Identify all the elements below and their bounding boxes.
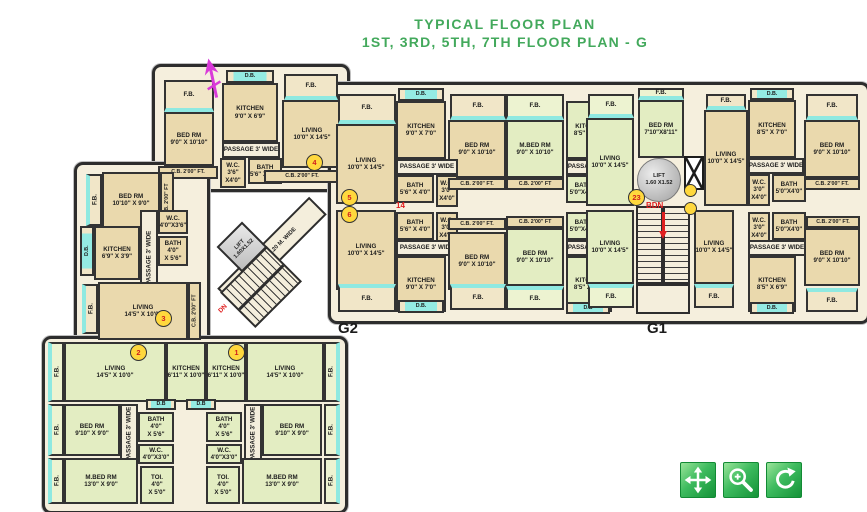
room-label: F.B. [327,367,334,378]
room-label: W.C. [752,179,765,186]
room-d-b: D.B. [750,302,794,314]
room-label: D.B [156,401,165,407]
room-label: X 5'6" [147,431,164,438]
room-d-b: D.B. [398,300,444,313]
title-line-1: TYPICAL FLOOR PLAN [335,16,675,32]
room-f-b: F.B. [48,404,64,456]
room-label: D.B [196,401,205,407]
red-annotation: 14 [396,201,405,210]
room-f-b: F.B. [450,284,506,310]
move-icon [683,465,713,495]
room-living: LIVING10'0" X 14'5" [704,110,748,206]
down-arrow-icon [662,212,665,236]
room-label: KITCHEN [758,277,786,284]
room-bed-rm: BED RM9'10" X 9'0" [64,404,120,456]
room-label: 6'11" X 10'0" [168,372,205,379]
unit-number-badge: 6 [341,206,358,223]
room-label: X4'0" [751,194,766,201]
room-bath: BATH5'6" X 4'0" [396,175,434,203]
room-f-b: F.B. [86,174,102,226]
room-label: PASSAGE 3' WIDE [224,146,278,153]
room-label: D.B. [84,246,90,257]
room-bed-rm: BED RM9'0" X 10'10" [164,112,214,166]
room-label: F.B. [709,293,720,300]
room-label: C.B. 2'00" FT [519,219,552,225]
room-label: BED RM [465,254,489,261]
room-label: 3'0" [753,224,764,231]
room-label: 6'9" X 3'9" [102,253,132,260]
room-c-b-2-00-ft: C.B. 2'00" FT [506,178,564,190]
room-f-b: F.B. [638,88,684,100]
room-label: M.BED RM [266,474,297,481]
room-label: 10'0" X 14'5" [591,247,628,254]
room-label: LIVING [133,304,154,311]
room-label: BED RM [177,132,201,139]
room-label: PASSAGE 3' WIDE [400,244,454,251]
room-label: M.BED RM [519,142,550,149]
room-label: 10'0" X 14'5" [707,158,744,165]
room-label: LIVING [716,151,737,158]
room-label: 5'0"X4'0" [776,188,803,195]
unit-number-badge: 23 [628,189,645,206]
room-label: 3'0" [753,186,764,193]
room-d-b: D.B. [398,88,444,101]
room-living: LIVING14'5" X 10'0" [246,342,324,402]
room-label: 5'6" X 4'0" [400,189,430,196]
room-w-c: W.C.3'6"X4'0" [220,158,246,188]
room-bath: BATH4'0"X 5'6" [138,412,174,442]
room-label: LIVING [275,365,296,372]
room-label: X 5'6" [164,255,181,262]
room-passage-3-wide: PASSAGE 3' WIDE [244,404,262,464]
room-f-b: F.B. [694,284,734,308]
room-bed-rm: BED RM9'0" X 10'10" [448,232,506,290]
room-label: 4'0"X3'0" [211,454,238,461]
room-w-c: W.C.4'0"X3'0" [138,444,174,464]
room-f-b: F.B. [48,458,64,504]
room-label: LIVING [302,127,323,134]
room-c-b-2-00-ft: C.B. 2'00" FT. [804,178,860,190]
room-label: 4'0" [217,481,228,488]
room-f-b: F.B. [506,94,564,120]
room-label: 9'0" X 10'10" [170,139,207,146]
room-label: F.B. [184,91,195,98]
room-label: F.B. [606,101,617,108]
room-passage-3-wide: PASSAGE 3' WIDE [120,404,138,464]
zoom-in-button[interactable] [723,462,759,498]
room-label: C.B. 2'00" FT [191,295,197,328]
viewer-toolbar [680,462,802,498]
room-label: KITCHEN [103,246,131,253]
unit-number: 4 [312,158,316,167]
room-w-c: W.C.3'0"X4'0" [748,174,770,206]
room-f-b: F.B. [48,342,64,402]
unit-number-badge: 5 [341,189,358,206]
room-label: 10'0" X 14'5" [591,162,628,169]
room-label: 9'0" X 7'0" [406,130,436,137]
room-bed-rm: BED RM7'10"X8'11" [638,100,684,158]
room-label: F.B. [91,195,98,206]
room-label: BATH [781,181,798,188]
room-label: F.B. [827,102,838,109]
room-f-b: F.B. [706,94,746,110]
room-c-b-2-00-ft: C.B. 2'00" FT. [448,218,506,230]
room-f-b: F.B. [450,94,506,120]
room-label: 10'10" X 9'0" [112,200,149,207]
room-label: F.B. [473,294,484,301]
room-bed-rm: BED RM9'0" X 10'10" [804,228,860,286]
room-label: F.B. [53,367,60,378]
room-passage-3-wide: PASSAGE 3' WIDE [222,142,280,158]
room-f-b: F.B. [588,284,634,308]
room-label: 10'0" X 14'5" [695,247,732,254]
room-label: 6'11" X 10'0" [208,372,245,379]
room-kitchen: KITCHEN6'9" X 3'9" [94,226,140,280]
room-label: BED RM [280,423,304,430]
stair-flight [665,208,688,282]
room-label: PASSAGE 3' WIDE [400,163,454,170]
room-label: KITCHEN [172,365,200,372]
room-w-c: W.C.4'0"X3'0" [206,444,242,464]
room-label: D.B. [767,91,778,97]
room-passage-3-wide: PASSAGE 3' WIDE [748,158,804,174]
room-label: BED RM [80,423,104,430]
room-label: C.B. 2'00" FT. [460,181,494,187]
room-living: LIVING14'5" X 10'0" [64,342,166,402]
room-f-b: F.B. [338,94,396,124]
room-c-b-2-00-ft: C.B. 2'00" FT. [264,170,340,183]
room-label: LIVING [600,240,621,247]
room-label: F.B. [53,425,60,436]
room-label: 8'5" X 6'9" [757,284,787,291]
stair-dn-label: DN [217,303,229,315]
room-label: F.B. [606,293,617,300]
room-label: BATH [216,416,233,423]
room-label: W.C. [149,447,162,454]
room-f-b: F.B. [338,284,396,312]
room-label: BATH [407,182,424,189]
room-f-b: F.B. [324,458,340,504]
room-d-b: D.B. [80,226,94,276]
unit-number: 5 [347,193,351,202]
room-label: KITCHEN [212,365,240,372]
rotate-button[interactable] [766,462,802,498]
room-label: BED RM [820,142,844,149]
room-kitchen: KITCHEN8'5" X 7'0" [748,100,796,158]
room-label: F.B. [530,295,541,302]
room-label: 9'0" X 10'10" [458,149,495,156]
unit-number-badge: 2 [130,344,147,361]
room-label: 9'0" X 10'10" [516,257,553,264]
room-label: BATH [407,219,424,226]
room-label: D.B. [767,305,778,311]
room-label: PASSAGE 3' WIDE [145,231,152,285]
pan-button[interactable] [680,462,716,498]
room-c-b-2-00-ft: C.B. 2'00" FT [506,216,564,228]
unit-number: 3 [161,314,165,323]
room-label: X4'0" [439,195,454,202]
door-swing-marker [684,202,697,215]
room-label: BED RM [820,250,844,257]
room-label: PASSAGE 3' WIDE [249,407,256,461]
room-d-b: D.B [186,399,216,410]
room-label: 9'10" X 9'0" [75,430,109,437]
room-label: BED RM [649,122,673,129]
room-living: LIVING10'0" X 14'5" [586,210,634,284]
room-label: W.C. [217,447,230,454]
room-label: 4'0" [218,423,229,430]
room-label: 9'0" X 10'10" [516,149,553,156]
room-label: F.B. [721,97,732,104]
room-label: LIVING [600,155,621,162]
room-label: 9'0" X 7'0" [406,284,436,291]
room-living: LIVING10'0" X 14'5" [586,118,634,206]
room-label: W.C. [166,215,179,222]
room-label: BED RM [119,193,143,200]
room-bed-rm: BED RM9'0" X 10'10" [804,120,860,178]
room-label: F.B. [362,104,373,111]
room-label: F.B. [656,89,667,96]
room-f-b: F.B. [806,94,858,120]
room-label: 13'0" X 9'0" [265,481,299,488]
room-w-c: W.C.4'0"X3'6" [158,210,188,234]
room-label: C.B. 2'00" FT. [171,169,205,175]
room-bath: BATH5'0"X4'0" [772,174,806,202]
room-bath: BATH4'0"X 5'6" [206,412,242,442]
room-label: F.B. [473,102,484,109]
room-toi: TOI.4'0"X 5'0" [140,466,174,504]
room-label: X4'0" [225,177,240,184]
room-label: 14'5" X 10'0" [266,372,303,379]
room-label: D.B. [416,91,427,97]
room-label: BATH [781,219,798,226]
room-label: 4'0"X3'6" [160,222,187,229]
room-kitchen: KITCHEN9'0" X 7'0" [396,101,446,159]
room-label: X4'0" [751,232,766,239]
floor-plan: TYPICAL FLOOR PLAN 1ST, 3RD, 5TH, 7TH FL… [0,0,867,512]
room-d-b: D.B. [226,70,274,83]
lift-g1-dims: 1.60 X1.52 [645,180,672,187]
room-label: F.B. [530,102,541,109]
room-label: 3'6" [227,169,238,176]
room-c-b-2-00-ft: C.B. 2'00" FT [188,282,201,340]
room-bed-rm: BED RM9'10" X 9'0" [262,404,322,456]
room-label: 4'0" [150,423,161,430]
unit-number-badge: 3 [155,310,172,327]
room-label: BED RM [523,250,547,257]
room-label: 9'0" X 10'10" [813,257,850,264]
room-label: C.B. 2'00" FT [519,181,552,187]
room-label: 13'0" X 9'0" [84,481,118,488]
room-label: F.B. [362,295,373,302]
room-label: LIVING [356,243,377,250]
room-label: KITCHEN [407,123,435,130]
room-label: PASSAGE 3' WIDE [125,407,132,461]
room-f-b: F.B. [324,342,340,402]
stair-flight [638,208,661,282]
room-label: D.B. [416,303,427,309]
room-living: LIVING10'0" X 14'5" [694,210,734,284]
unit-number: 6 [347,210,351,219]
room-label: W.C. [226,162,239,169]
room-label: 10'0" X 14'5" [347,250,384,257]
room-bath: BATH4'0"X 5'6" [158,236,188,266]
room-m-bed-rm: M.BED RM9'0" X 10'10" [506,120,564,178]
room-label: 5'6" X 4'0" [400,226,430,233]
room-label: KITCHEN [236,105,264,112]
room-label: 8'5" X 7'0" [757,129,787,136]
room-label: F.B. [87,304,94,315]
room-label: 5'0"X4'0" [776,226,803,233]
room-f-b: F.B. [284,74,338,100]
room-label: M.BED RM [85,474,116,481]
room-d-b: D.B [146,399,176,410]
room-label: 4'0" [167,247,178,254]
room-label: 9'10" X 9'0" [275,430,309,437]
room-kitchen: KITCHEN6'11" X 10'0" [166,342,206,402]
room-label: 9'0" X 6'9" [235,113,265,120]
room-f-b: F.B. [806,288,858,312]
unit-number: 2 [136,348,140,357]
door-swing-marker [684,184,697,197]
room-label: X 5'6" [215,431,232,438]
room-bath: BATH5'0"X4'0" [772,212,806,240]
entrance-lobby-g1 [636,284,690,314]
room-label: PASSAGE 3' WIDE [749,162,803,169]
room-c-b-2-00-ft: C.B. 2'00" FT. [806,216,860,228]
room-label: C.B. 2'00" FT. [815,181,849,187]
room-bath: BATH5'6" X 4'0" [396,212,434,240]
room-label: 4'0"X3'0" [143,454,170,461]
rotate-icon [769,465,799,495]
room-label: F.B. [306,82,317,89]
room-c-b-2-00-ft: C.B. 2'00" FT. [448,178,506,190]
lift-g1-label: LIFT [653,173,665,180]
room-label: C.B. 2'00" FT. [816,219,850,225]
room-label: 9'0" X 10'10" [458,261,495,268]
room-label: 14'5" X 10'0" [96,372,133,379]
wing-label-g1: G1 [647,320,667,337]
red-annotation: BDN [646,201,663,210]
room-label: X 5'0" [148,489,165,496]
room-f-b: F.B. [506,286,564,310]
unit-number-badge: 1 [228,344,245,361]
room-toi: TOI.4'0"X 5'0" [206,466,240,504]
unit-number-badge: 4 [306,154,323,171]
room-f-b: F.B. [324,404,340,456]
room-passage-3-wide: PASSAGE 3' WIDE [396,159,458,175]
room-f-b: F.B. [588,94,634,118]
room-label: 10'0" X 14'5" [347,164,384,171]
room-label: 4'0" [151,481,162,488]
zoom-in-icon [726,465,756,495]
room-label: TOI. [151,474,163,481]
room-f-b: F.B. [82,284,98,334]
room-bed-rm: BED RM9'0" X 10'10" [506,228,564,286]
room-label: D.B. [245,73,256,79]
room-m-bed-rm: M.BED RM13'0" X 9'0" [64,458,138,504]
room-label: 10'0" X 14'5" [293,134,330,141]
room-label: TOI. [217,474,229,481]
page-title: TYPICAL FLOOR PLAN 1ST, 3RD, 5TH, 7TH FL… [335,16,675,50]
room-label: X 5'0" [214,489,231,496]
room-label: PASSAGE 3' WIDE [750,244,804,251]
wing-label-g2: G2 [338,320,358,337]
room-label: F.B. [327,476,334,487]
room-passage-3-wide: PASSAGE 3' WIDE [748,240,806,256]
room-label: C.B. 2'00" FT. [460,221,494,227]
room-d-b: D.B. [750,88,794,100]
room-living: LIVING14'5" X 10'0" [98,282,188,340]
unit-number: 23 [632,193,640,202]
room-label: 9'0" X 10'10" [813,149,850,156]
room-label: LIVING [105,365,126,372]
room-m-bed-rm: M.BED RM13'0" X 9'0" [242,458,322,504]
room-label: W.C. [752,217,765,224]
title-line-2: 1ST, 3RD, 5TH, 7TH FLOOR PLAN - G [335,34,675,50]
room-label: KITCHEN [407,277,435,284]
room-label: BED RM [465,142,489,149]
room-label: BATH [148,416,165,423]
unit-number: 1 [234,348,238,357]
room-label: 7'10"X8'11" [644,129,677,136]
room-label: LIVING [356,157,377,164]
room-label: KITCHEN [758,122,786,129]
room-label: F.B. [327,425,334,436]
room-label: LIVING [704,240,725,247]
room-label: F.B. [827,297,838,304]
room-label: F.B. [53,476,60,487]
room-label: C.B. 2'00" FT. [285,173,319,179]
room-label: BATH [165,240,182,247]
